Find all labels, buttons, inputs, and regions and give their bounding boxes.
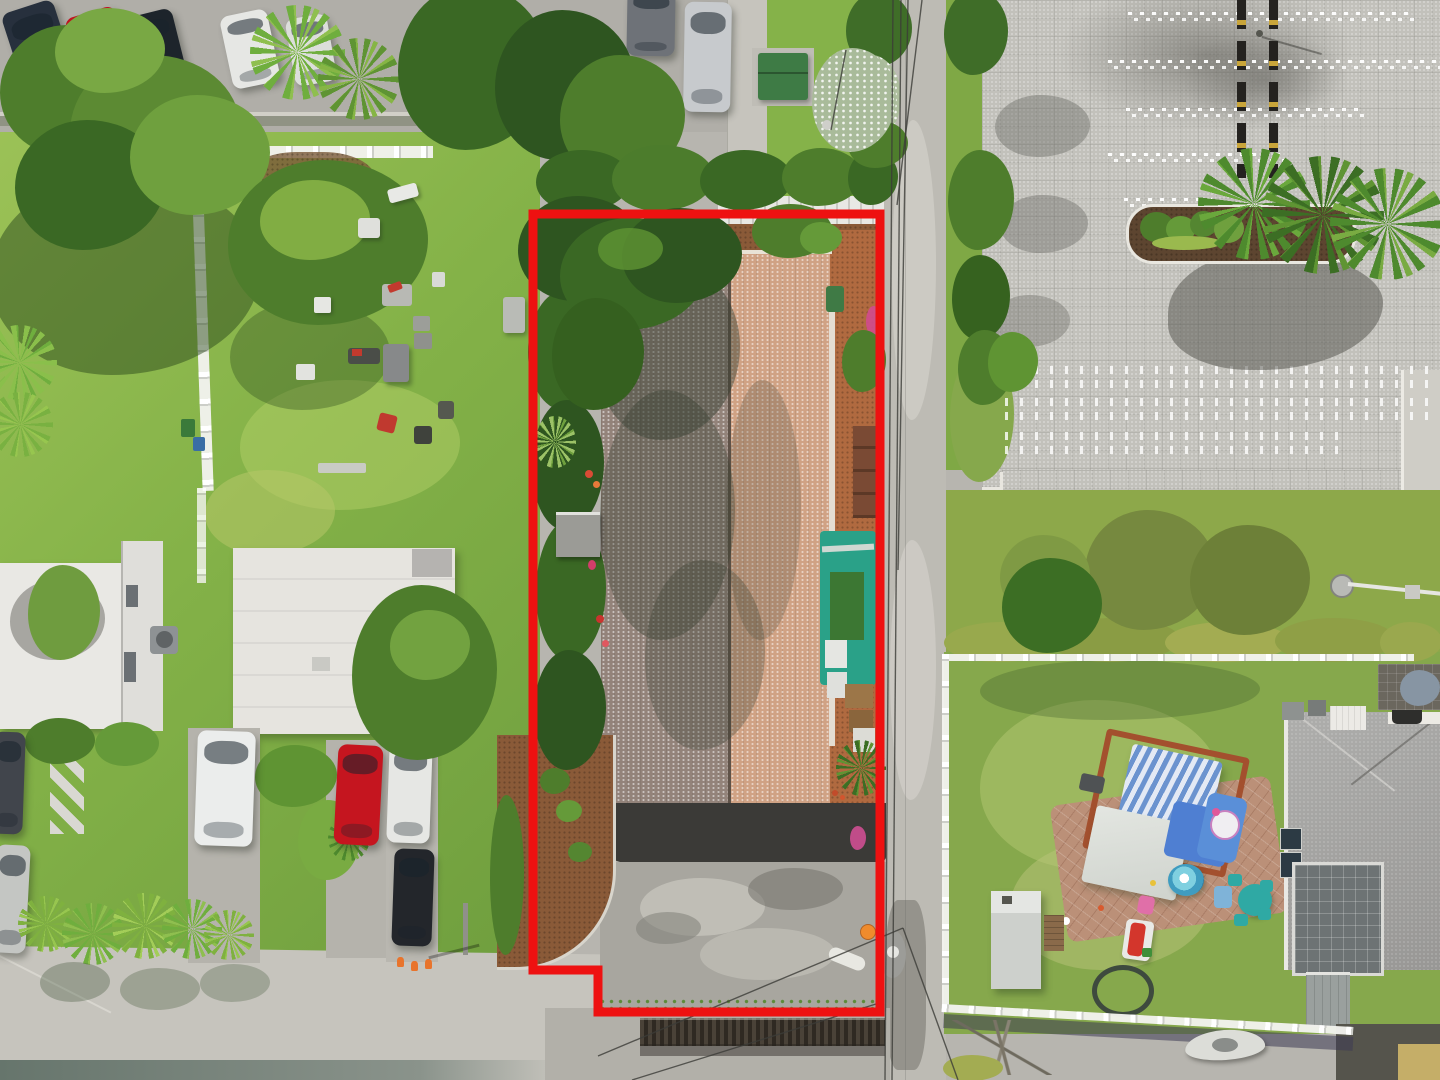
aerial-photo (0, 0, 1440, 1080)
boundary-overlay (0, 0, 1440, 1080)
property-boundary (533, 214, 880, 1012)
